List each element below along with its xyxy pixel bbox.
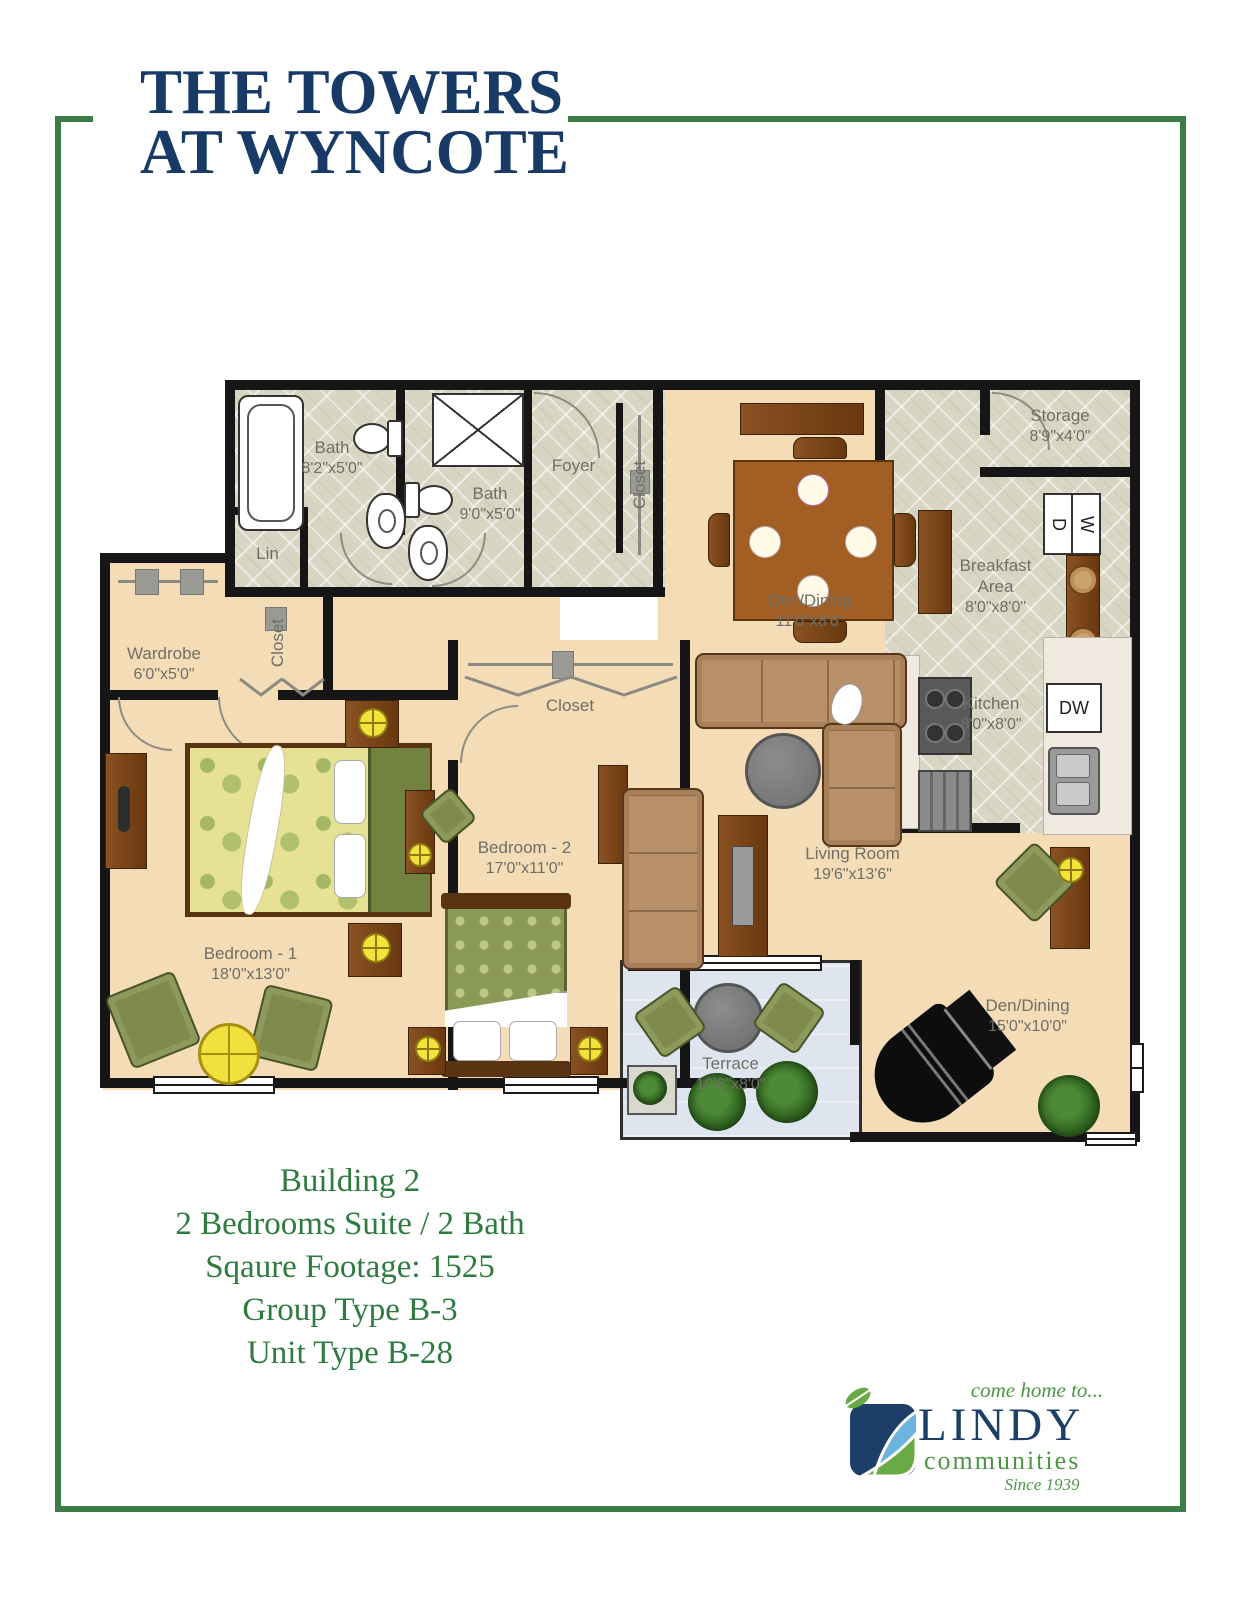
wardrobe-label: Wardrobe 6'0"x5'0" [100, 643, 228, 685]
lamp-icon [361, 933, 391, 963]
room-name: Foyer [526, 455, 621, 476]
terrace-label: Terrace 10'6"x8'0" [658, 1053, 803, 1095]
window-den-right [1130, 1043, 1144, 1093]
wall-top [225, 380, 1140, 390]
info-unit-type: Unit Type B-28 [40, 1332, 660, 1375]
sideboard-icon [740, 403, 864, 435]
kitchen-sink-icon [1048, 747, 1100, 815]
room-name: Bedroom - 2 [432, 837, 617, 858]
breakfast-label: Breakfast Area 8'0"x8'0" [943, 555, 1048, 618]
room-dims: 10'6"x8'0" [658, 1074, 803, 1095]
frame-top-right-segment [568, 116, 1186, 122]
room-name: Storage [990, 405, 1130, 426]
lin-label: Lin [235, 543, 300, 564]
room-name: Kitchen [940, 693, 1042, 714]
room-name: Terrace [658, 1053, 803, 1074]
unit-info: Building 2 2 Bedrooms Suite / 2 Bath Sqa… [40, 1160, 660, 1375]
bedroom1-label: Bedroom - 1 18'0"x13'0" [148, 943, 353, 985]
room-name: Bath [272, 437, 392, 458]
dishwasher-icon: DW [1046, 683, 1102, 733]
info-sqft: Sqaure Footage: 1525 [40, 1246, 660, 1289]
room-name: Breakfast Area [943, 555, 1048, 597]
storage-label: Storage 8'9"x4'0" [990, 405, 1130, 447]
tv-console-icon [718, 815, 768, 957]
room-dims: 15'0"x10'0" [945, 1016, 1110, 1037]
room-name: Living Room [750, 843, 955, 864]
plant-icon [1038, 1075, 1100, 1137]
title-line1: THE TOWERS [140, 62, 600, 122]
room-dims: 18'0"x13'0" [148, 964, 353, 985]
den-dining-upper-label: Den/Dining 11'0"x8'6" [710, 590, 910, 632]
frame-right [1180, 116, 1186, 1512]
wall-foyer-den [653, 380, 663, 597]
room-dims: 19'6"x13'6" [750, 864, 955, 885]
bath2-label: Bath 9'0"x5'0" [435, 483, 545, 525]
room-name: Den/Dining [945, 995, 1110, 1016]
closet-bifold-icon [238, 677, 326, 697]
room-name: Closet [268, 619, 287, 667]
room-dims: 6'0"x5'0" [100, 664, 228, 685]
sink-icon [366, 493, 406, 549]
logo-sub: communities [924, 1447, 1152, 1475]
info-group-type: Group Type B-3 [40, 1289, 660, 1332]
frame-bottom [55, 1506, 1186, 1512]
logo-since: Since 1939 [932, 1475, 1152, 1495]
bedroom2-label: Bedroom - 2 17'0"x11'0" [432, 837, 617, 879]
washer-dryer-icon: D W [1043, 493, 1101, 555]
room-name: Closet [490, 695, 650, 716]
sectional-chaise-icon [822, 723, 902, 847]
room-dims: 8'9"x4'0" [990, 426, 1130, 447]
shower-icon [432, 393, 524, 467]
coffee-table-icon [745, 733, 821, 809]
bed1-icon [185, 743, 432, 917]
dining-chair-icon [894, 513, 916, 567]
bed2-icon [445, 893, 567, 1083]
room-dims: 8'0"x8'0" [940, 714, 1042, 735]
room-name: Bedroom - 1 [148, 943, 353, 964]
sink-icon [408, 525, 448, 581]
wall-bath1-left [225, 380, 235, 595]
window-den-bottom [1085, 1132, 1137, 1146]
hanger-icon [180, 569, 204, 595]
patio-table-icon [693, 983, 763, 1053]
lamp-icon [358, 708, 388, 738]
sectional-sofa-icon [695, 653, 907, 729]
wall-foyer-closet [616, 403, 623, 553]
room-dims: 11'0"x8'6" [710, 611, 910, 632]
dining-chair-icon [793, 437, 847, 459]
round-table-icon [198, 1023, 260, 1085]
room-name: Bath [435, 483, 545, 504]
lindy-logo-icon [840, 1386, 926, 1486]
room-dims: 17'0"x11'0" [432, 858, 617, 879]
dining-chair-icon [708, 513, 730, 567]
page-title: THE TOWERS AT WYNCOTE [140, 62, 600, 182]
lamp-icon [577, 1036, 603, 1062]
lamp-icon [415, 1036, 441, 1062]
sofa-icon [622, 788, 704, 970]
dishwasher-label: DW [1059, 698, 1089, 719]
room-dims: 8'0"x8'0" [943, 597, 1048, 618]
room-name: Closet [630, 461, 649, 509]
bedroom2-closet-label: Closet [490, 695, 650, 716]
kitchen-label: Kitchen 8'0"x8'0" [940, 693, 1042, 735]
room-dims: 9'0"x5'0" [435, 504, 545, 525]
room-name: Den/Dining [710, 590, 910, 611]
room-dims: 8'2"x5'0" [272, 458, 392, 479]
hanger-icon [135, 569, 159, 595]
wall-wardrobe-top [100, 553, 235, 563]
wall-terrace-den [850, 960, 860, 1045]
logo-name: LINDY [918, 1403, 1152, 1447]
foyer-label: Foyer [526, 455, 621, 476]
dresser-icon [105, 753, 147, 869]
living-room-label: Living Room 19'6"x13'6" [750, 843, 955, 885]
foyer-closet-label: Closet [630, 438, 650, 532]
title-line2: AT WYNCOTE [140, 122, 600, 182]
wall-storage-left [980, 385, 990, 435]
info-building: Building 2 [40, 1160, 660, 1203]
lamp-icon [1058, 857, 1084, 883]
bath1-label: Bath 8'2"x5'0" [272, 437, 392, 479]
wall-service-bottom [225, 587, 665, 597]
den-dining-lower-label: Den/Dining 15'0"x10'0" [945, 995, 1110, 1037]
refrigerator-icon [918, 770, 972, 832]
lamp-icon [408, 843, 432, 867]
washer-label: W [1076, 516, 1097, 533]
room-name: Lin [235, 543, 300, 564]
stool-icon [1068, 565, 1098, 595]
lindy-logo: come home to... LINDY communities Since … [852, 1378, 1152, 1495]
floor-plan: Bath 8'2"x5'0" Lin Bath 9'0"x5'0" Foyer … [100, 375, 1140, 1150]
dryer-label: D [1048, 518, 1069, 531]
wall-storage-bottom [980, 467, 1140, 477]
info-bedrooms: 2 Bedrooms Suite / 2 Bath [40, 1203, 660, 1246]
room-name: Wardrobe [100, 643, 228, 664]
hall-closet-label: Closet [268, 598, 288, 688]
toilet-tank-icon [404, 482, 420, 518]
